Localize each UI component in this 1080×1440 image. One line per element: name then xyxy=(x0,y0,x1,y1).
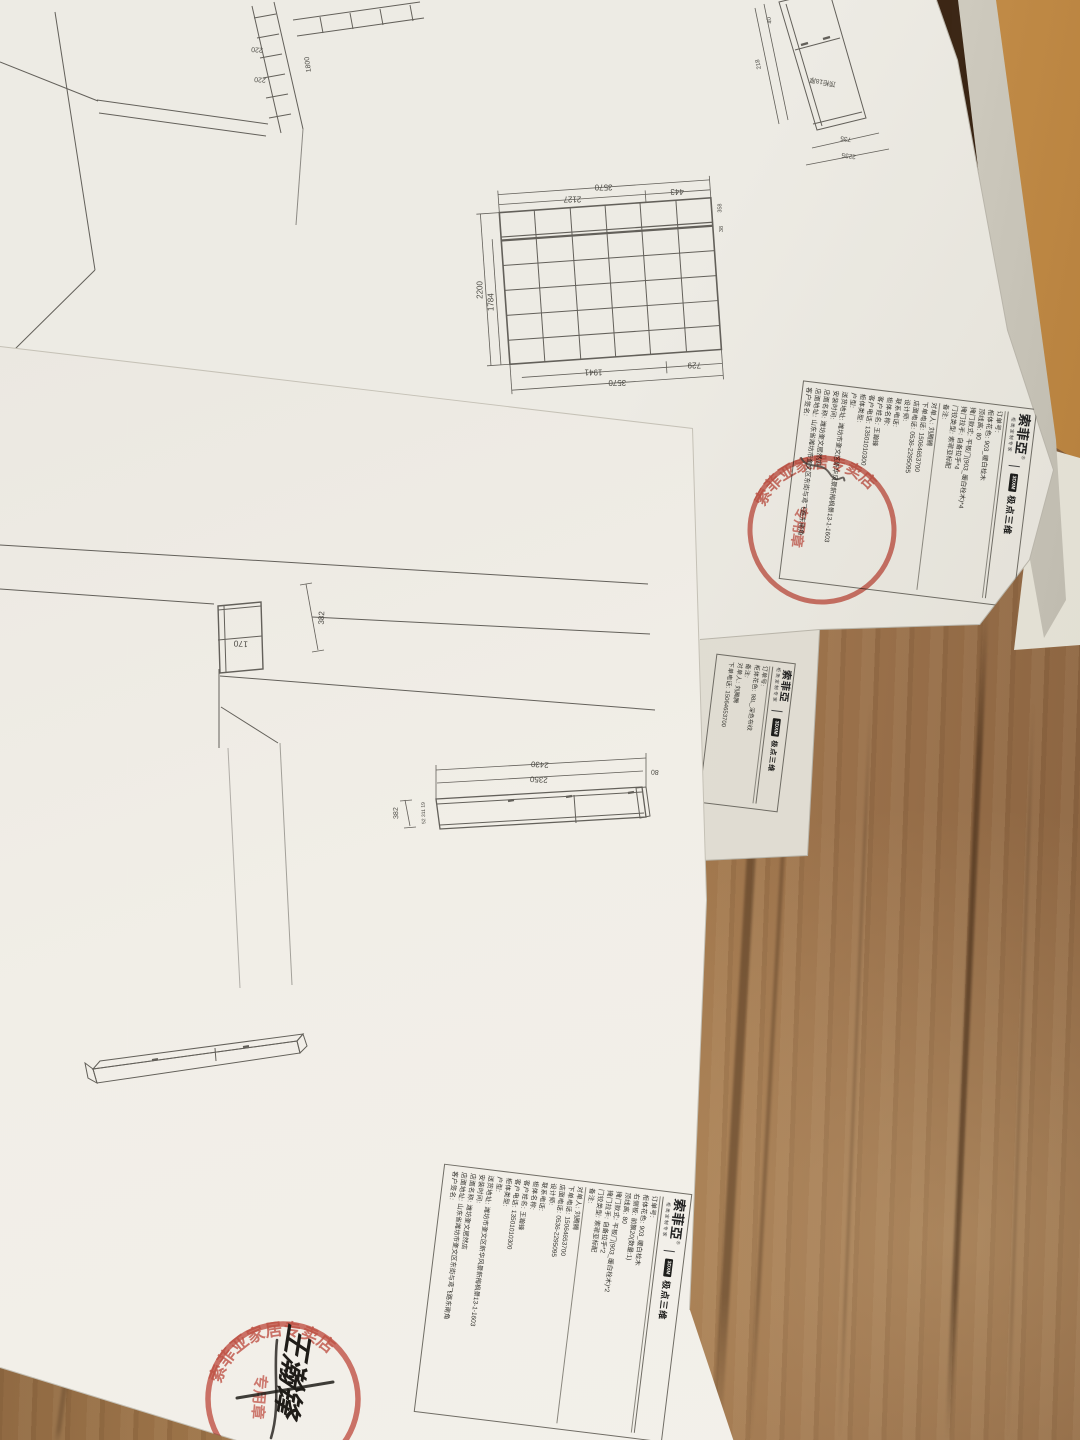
dim-label: 735 xyxy=(840,134,852,142)
dim-label: 2235 xyxy=(841,151,857,160)
dim-label: 220 xyxy=(251,45,263,53)
registered-mark: ® xyxy=(674,1240,680,1244)
dim-label: 3570 xyxy=(608,378,626,387)
wood-grain-streak xyxy=(838,701,872,1440)
registered-mark: ® xyxy=(1019,455,1025,459)
dim-label: 38 xyxy=(719,226,725,232)
order-fields: 对单人:刘腾腾下单电话:15064653700店面电话:0536-2295095… xyxy=(422,1171,587,1424)
software-name: 极点三维 xyxy=(766,740,780,773)
order-title-block-bottom: 索菲亞® 柜类定制专家 | 3DXM 极点三维 订单号:柜体花色:903_暖白栓… xyxy=(414,1164,693,1440)
software-name: 极点三维 xyxy=(1001,495,1019,536)
room-perspective-sketch: 170 382 xyxy=(0,545,655,988)
software-logo-icon: 3DXM xyxy=(771,718,781,737)
dim-label: 358 xyxy=(718,203,724,212)
tv-cabinet-elevation: 2430 2350 80 382 52 311 19 xyxy=(393,753,659,829)
customer-signature: 王瀚锋 xyxy=(215,1320,355,1440)
photo-of-blueprints-on-wood-floor: 索菲亞 柜类定制专家 | 3DXM 极点三维 订单号:柜体花色:98L_深色布纹… xyxy=(0,0,1080,1440)
iso-cabinet-sketch xyxy=(85,1034,307,1083)
dim-label: 443 xyxy=(670,187,684,196)
dim-label: 218 xyxy=(755,58,763,70)
stamp-center-text: 专用章 xyxy=(788,505,810,549)
dim-label: 40 xyxy=(766,16,773,24)
software-logo-icon: 3DXM xyxy=(663,1258,673,1277)
part-label: 顶柜18厚 xyxy=(808,76,836,90)
software-name: 极点三维 xyxy=(656,1280,674,1321)
wardrobe-grid-drawing: 3570 2127 443 2200 1784 1941 729 3570 35… xyxy=(468,173,736,396)
dim-label: 3570 xyxy=(594,182,612,191)
dim-label: 382 xyxy=(317,611,326,625)
header-divider: | xyxy=(663,1249,677,1254)
room-corner-sketch: 220 220 1800 xyxy=(0,2,424,350)
dim-label: 80 xyxy=(651,768,659,776)
dim-label: 2350 xyxy=(529,774,548,784)
header-divider: | xyxy=(1008,464,1022,469)
dim-label: 729 xyxy=(687,360,701,369)
top-cabinet-drawing: 顶柜18厚 218 40 735 2235 xyxy=(755,0,889,165)
dim-label: 1941 xyxy=(584,367,602,376)
dim-label: 382 xyxy=(393,807,400,819)
dim-label: 1800 xyxy=(304,56,313,73)
wood-grain-streak xyxy=(945,601,989,1440)
dim-label: 2127 xyxy=(563,194,581,203)
dim-label: 2200 xyxy=(476,281,485,299)
dim-label: 52 311 19 xyxy=(421,802,428,824)
dim-label: 220 xyxy=(254,75,266,83)
wood-grain-streak xyxy=(1006,700,1035,1440)
dim-label: 2430 xyxy=(530,759,549,769)
dim-label: 170 xyxy=(233,638,248,649)
header-divider: | xyxy=(771,709,785,714)
dim-label: 1784 xyxy=(487,293,496,311)
software-logo-icon: 3DXM xyxy=(1008,473,1018,492)
